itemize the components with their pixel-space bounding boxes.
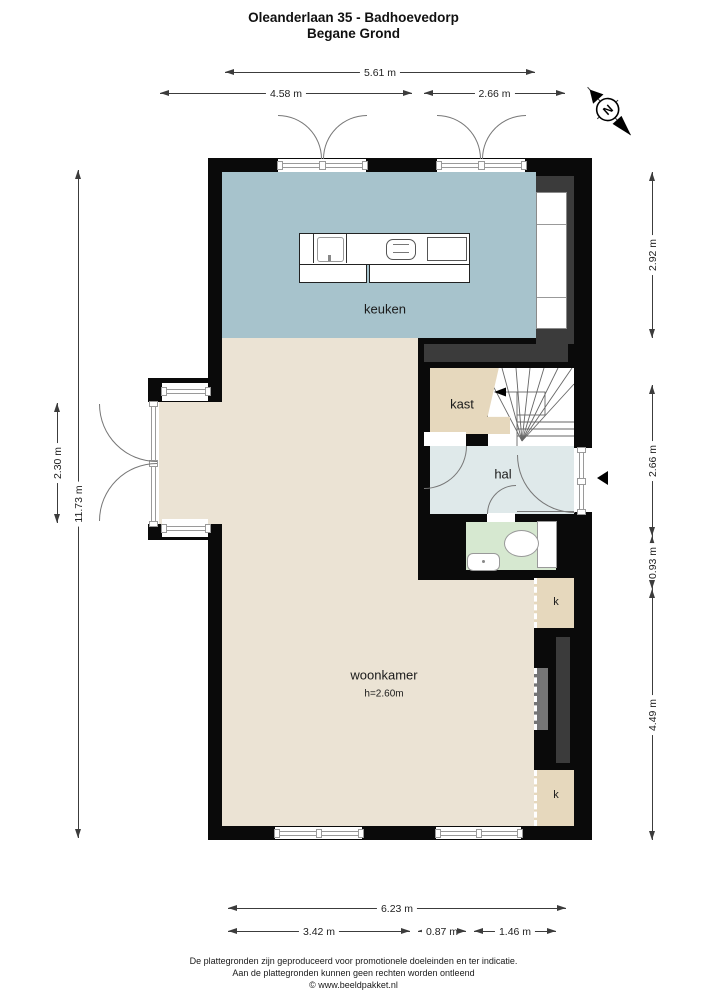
door-frame (478, 161, 485, 170)
dim-label: 0.93 m (647, 542, 659, 582)
dim-bottom-total: 6.23 m (228, 908, 566, 909)
dim-label: 4.58 m (266, 88, 306, 100)
toilet-door-opening (487, 513, 515, 522)
door-frame (577, 478, 586, 485)
woonkamer-floor-upper (222, 338, 418, 826)
room-label-closet-top: k (553, 596, 559, 608)
top-door-opening-right (437, 159, 525, 172)
cabinet-divider (537, 224, 566, 225)
door-swing-arc (99, 463, 157, 521)
north-compass-icon: N (575, 77, 643, 145)
dim-bottom-left: 3.42 m (228, 931, 410, 932)
stairs-direction-arrow (494, 388, 506, 397)
door-frame (577, 447, 586, 453)
island-bottom-counter-right (369, 264, 470, 283)
floor-title: Begane Grond (0, 26, 707, 42)
window-frame (435, 829, 441, 838)
door-swing-arc (482, 115, 526, 159)
door-frame (577, 509, 586, 515)
front-door-leaf (517, 511, 574, 512)
cooktop (386, 239, 416, 260)
dim-label: 4.49 m (647, 694, 659, 734)
door-frame (149, 521, 158, 527)
dim-label: 5.61 m (360, 67, 400, 79)
staircase (488, 368, 574, 446)
sink-drain-icon (482, 560, 485, 563)
counter-divider (313, 234, 314, 263)
dim-label: 2.30 m (52, 443, 64, 483)
dim-bottom-right: 1.46 m (474, 931, 556, 932)
dim-label: 2.66 m (647, 440, 659, 480)
disclaimer-line2: Aan de plattegronden kunnen geen rechten… (0, 967, 707, 979)
door-frame (319, 161, 326, 170)
staircase-treads (488, 368, 574, 446)
disclaimer-line1: De plattegronden zijn geproduceerd voor … (0, 955, 707, 967)
window-frame (274, 829, 280, 838)
door-frame (436, 161, 442, 170)
room-label-woonkamer: woonkamer (350, 668, 417, 683)
entrance-arrow-icon (597, 471, 608, 485)
dim-label: 0.87 m (422, 926, 462, 938)
dim-left-bay: 2.30 m (57, 403, 58, 523)
dim-label: 6.23 m (377, 903, 417, 915)
counter-divider (346, 234, 347, 263)
dim-right-keuken: 2.92 m (652, 172, 653, 338)
room-label-hal: hal (494, 467, 511, 482)
chimney-gray-strip (534, 668, 548, 730)
room-label-keuken: keuken (364, 302, 406, 317)
door-swing-arc (323, 115, 367, 159)
disclaimer: De plattegronden zijn geproduceerd voor … (0, 955, 707, 991)
dim-right-toilet: 0.93 m (652, 536, 653, 589)
cabinet-divider (537, 297, 566, 298)
wall-inset-band (424, 344, 568, 362)
toilet-bowl (504, 530, 539, 557)
window-glazing (162, 389, 208, 394)
window-frame (205, 387, 211, 396)
window-frame (476, 829, 482, 838)
door-frame (362, 161, 368, 170)
dim-left-total: 11.73 m (78, 170, 79, 838)
dim-top-right: 2.66 m (424, 93, 565, 94)
dim-label: 11.73 m (73, 481, 85, 526)
dim-top-left: 4.58 m (160, 93, 412, 94)
cooktop-line (393, 252, 409, 253)
bay-window-top (162, 383, 208, 401)
page-title: Oleanderlaan 35 - Badhoevedorp Begane Gr… (0, 10, 707, 42)
chimney-inset (556, 637, 570, 763)
window-glazing (162, 526, 208, 531)
door-swing-arc (437, 115, 481, 159)
island-appliance (427, 237, 467, 261)
top-door-opening-left (278, 159, 366, 172)
kitchen-island (299, 233, 470, 283)
dim-right-woonkamer: 4.49 m (652, 589, 653, 840)
floorplan-page: Oleanderlaan 35 - Badhoevedorp Begane Gr… (0, 0, 707, 1000)
kitchen-wall-cabinets (536, 192, 567, 329)
dim-label: 2.66 m (474, 88, 514, 100)
ceiling-height-label: h=2.60m (364, 689, 403, 700)
kitchen-sink (317, 237, 344, 262)
bay-floor (157, 402, 222, 524)
dim-label: 2.92 m (647, 235, 659, 275)
window-frame (517, 829, 523, 838)
window-frame (316, 829, 322, 838)
window-frame (205, 524, 211, 533)
door-swing-arc (99, 404, 157, 462)
hal-door-opening (424, 432, 466, 446)
bay-window-bottom (162, 519, 208, 537)
front-door-opening (574, 448, 592, 512)
dim-bottom-mid: 0.87 m (418, 931, 466, 932)
window-frame (358, 829, 364, 838)
copyright: © www.beeldpakket.nl (0, 979, 707, 991)
door-frame (277, 161, 283, 170)
island-top-counter (299, 233, 470, 265)
room-label-kast: kast (450, 397, 474, 412)
dim-top-total: 5.61 m (225, 72, 535, 73)
dim-label: 3.42 m (299, 926, 339, 938)
woonkamer-floor-lower (418, 580, 534, 826)
room-label-closet-bottom: k (553, 789, 559, 801)
bottom-window-right (436, 827, 521, 839)
dim-label: 1.46 m (495, 926, 535, 938)
sink-faucet-icon (328, 255, 331, 261)
window-frame (161, 387, 167, 396)
dim-right-hal: 2.66 m (652, 385, 653, 536)
island-bottom-counter-left (299, 264, 367, 283)
door-frame (521, 161, 527, 170)
door-swing-arc (278, 115, 322, 159)
toilet-tank (537, 521, 557, 568)
window-frame (161, 524, 167, 533)
toilet-sink (467, 553, 500, 571)
cooktop-line (393, 244, 409, 245)
bottom-window-left (275, 827, 362, 839)
address-title: Oleanderlaan 35 - Badhoevedorp (0, 10, 707, 26)
